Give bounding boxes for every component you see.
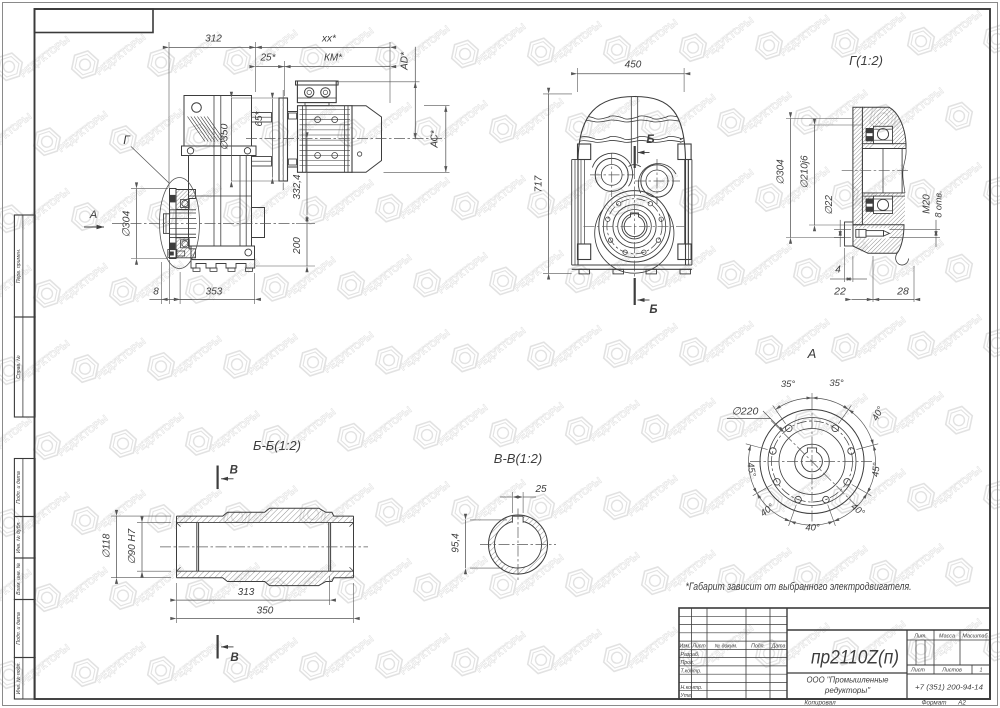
svg-text:8: 8 <box>153 287 159 298</box>
svg-text:4: 4 <box>835 265 841 276</box>
svg-text:1: 1 <box>980 668 983 674</box>
svg-text:45°: 45° <box>870 462 882 477</box>
svg-text:22: 22 <box>833 286 846 298</box>
svg-text:717: 717 <box>534 175 545 192</box>
svg-text:Разраб.: Разраб. <box>681 652 700 658</box>
svg-text:25: 25 <box>534 484 547 495</box>
svg-text:Б: Б <box>649 304 657 316</box>
svg-text:*Габарит зависит от выбранного: *Габарит зависит от выбранного электродв… <box>686 581 912 593</box>
svg-text:∅350: ∅350 <box>219 124 231 151</box>
svg-text:450: 450 <box>625 60 642 71</box>
svg-text:А: А <box>89 209 97 221</box>
svg-text:№ докум.: № докум. <box>715 644 738 650</box>
svg-text:Лист: Лист <box>910 668 925 674</box>
svg-text:Подп.: Подп. <box>751 644 765 650</box>
svg-text:353: 353 <box>206 287 223 298</box>
svg-text:+7 (351) 200-94-14: +7 (351) 200-94-14 <box>915 683 983 692</box>
svg-text:Т.контр.: Т.контр. <box>681 668 702 674</box>
svg-text:Формат: Формат <box>921 700 946 707</box>
svg-text:312: 312 <box>205 34 222 45</box>
svg-text:Изм.: Изм. <box>679 644 690 650</box>
svg-text:Б-Б(1:2): Б-Б(1:2) <box>253 438 301 453</box>
svg-text:∅210j6: ∅210j6 <box>800 155 811 189</box>
svg-text:КМ*: КМ* <box>324 53 343 64</box>
svg-text:В: В <box>230 465 238 477</box>
svg-text:АС*: АС* <box>430 129 441 148</box>
svg-text:Н.контр.: Н.контр. <box>681 685 703 691</box>
svg-text:8 отв.: 8 отв. <box>934 190 944 217</box>
svg-text:Б: Б <box>646 134 654 146</box>
svg-text:Лит.: Лит. <box>913 634 927 640</box>
svg-text:35°: 35° <box>781 379 796 390</box>
svg-text:редукторы": редукторы" <box>824 686 871 695</box>
svg-text:xx*: xx* <box>321 34 337 45</box>
svg-text:65*: 65* <box>254 110 265 126</box>
svg-text:25*: 25* <box>259 53 276 64</box>
svg-text:35°: 35° <box>829 378 844 389</box>
svg-text:Листов: Листов <box>941 668 962 674</box>
svg-text:Инв. № дубл.: Инв. № дубл. <box>16 521 22 553</box>
svg-text:ООО "Промышленные: ООО "Промышленные <box>807 676 890 685</box>
svg-text:Масштаб: Масштаб <box>962 634 988 640</box>
svg-text:40°: 40° <box>805 523 820 534</box>
svg-text:∅90 Н7: ∅90 Н7 <box>127 528 138 564</box>
svg-text:Подп. и дата: Подп. и дата <box>16 612 22 645</box>
svg-text:Копировал: Копировал <box>804 700 836 707</box>
svg-text:пр2110Z(п): пр2110Z(п) <box>811 647 899 669</box>
svg-text:∅304: ∅304 <box>776 159 787 185</box>
svg-text:В: В <box>230 652 238 664</box>
svg-text:В-В(1:2): В-В(1:2) <box>494 451 542 466</box>
svg-text:Г(1:2): Г(1:2) <box>849 53 883 68</box>
svg-text:А: А <box>807 346 817 361</box>
svg-text:∅304: ∅304 <box>121 211 133 238</box>
svg-text:200: 200 <box>292 237 303 255</box>
svg-text:∅22: ∅22 <box>824 195 835 215</box>
svg-text:Взам. инв. №: Взам. инв. № <box>16 562 22 594</box>
svg-text:Утв.: Утв. <box>681 693 693 699</box>
svg-text:350: 350 <box>257 606 274 617</box>
svg-text:95,4: 95,4 <box>451 533 462 553</box>
svg-text:Масса: Масса <box>939 634 955 640</box>
svg-text:∅220: ∅220 <box>732 406 759 418</box>
svg-text:Справ. №: Справ. № <box>16 355 22 379</box>
svg-text:Лист: Лист <box>691 644 706 650</box>
svg-text:А2: А2 <box>957 700 966 707</box>
svg-text:332,4: 332,4 <box>292 174 303 199</box>
svg-text:28: 28 <box>896 286 909 298</box>
svg-text:Перв. примен.: Перв. примен. <box>16 249 22 283</box>
svg-text:Подп. и дата: Подп. и дата <box>16 471 22 504</box>
svg-text:Инв. № подл.: Инв. № подл. <box>16 662 22 694</box>
svg-text:∅118: ∅118 <box>102 533 113 558</box>
svg-text:М20: М20 <box>922 194 933 214</box>
svg-text:Пров.: Пров. <box>681 660 695 666</box>
svg-text:АD*: АD* <box>400 51 411 71</box>
svg-text:313: 313 <box>238 587 255 598</box>
svg-text:Дата: Дата <box>771 644 786 650</box>
